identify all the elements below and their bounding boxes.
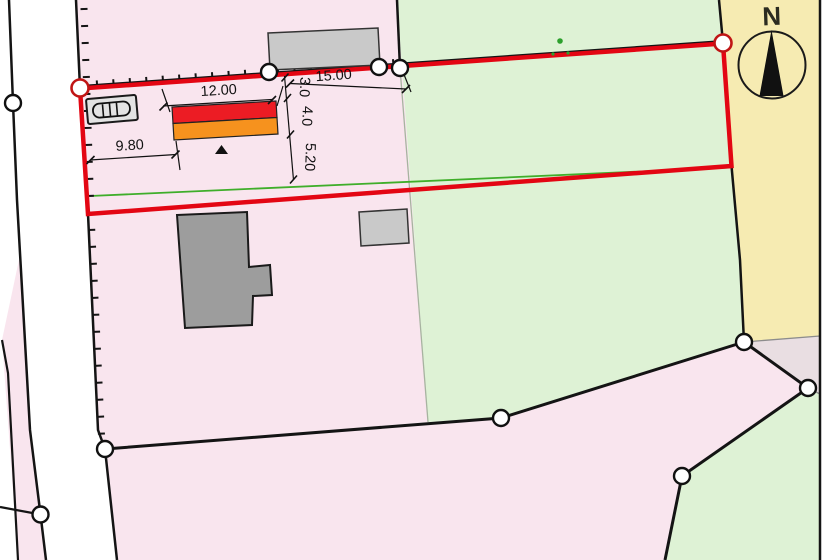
vegetation-point: [551, 52, 554, 55]
dimension-label-15.00: 15.00: [315, 67, 352, 85]
dimension-label-4.0: 4.0: [298, 106, 315, 127]
dimension-label-3.0: 3.0: [296, 77, 313, 98]
boundary-point: [33, 507, 49, 523]
boundary-point: [97, 441, 113, 457]
existing-shed: [359, 209, 409, 246]
vegetation-point: [566, 51, 569, 54]
boundary-point-red-nw: [72, 80, 89, 97]
boundary-point: [261, 64, 277, 80]
vegetation-point: [557, 38, 563, 44]
dimension-label-9.80: 9.80: [115, 137, 144, 155]
boundary-point: [493, 410, 509, 426]
boundary-point: [800, 380, 816, 396]
boundary-point: [736, 334, 752, 350]
north-label: N: [762, 1, 782, 32]
boundary-point: [674, 468, 690, 484]
dimension-label-5.20: 5.20: [301, 143, 318, 172]
boundary-point: [392, 60, 408, 76]
existing-building-north: [268, 28, 380, 70]
car-icon: [86, 95, 138, 124]
site-plan: 12.00 15.00 9.80 3.0 4.0 5.20 N: [0, 0, 840, 560]
boundary-point-red-ne: [715, 35, 732, 52]
boundary-point: [371, 59, 387, 75]
boundary-point: [5, 95, 21, 111]
dimension-label-12.00: 12.00: [200, 82, 237, 100]
